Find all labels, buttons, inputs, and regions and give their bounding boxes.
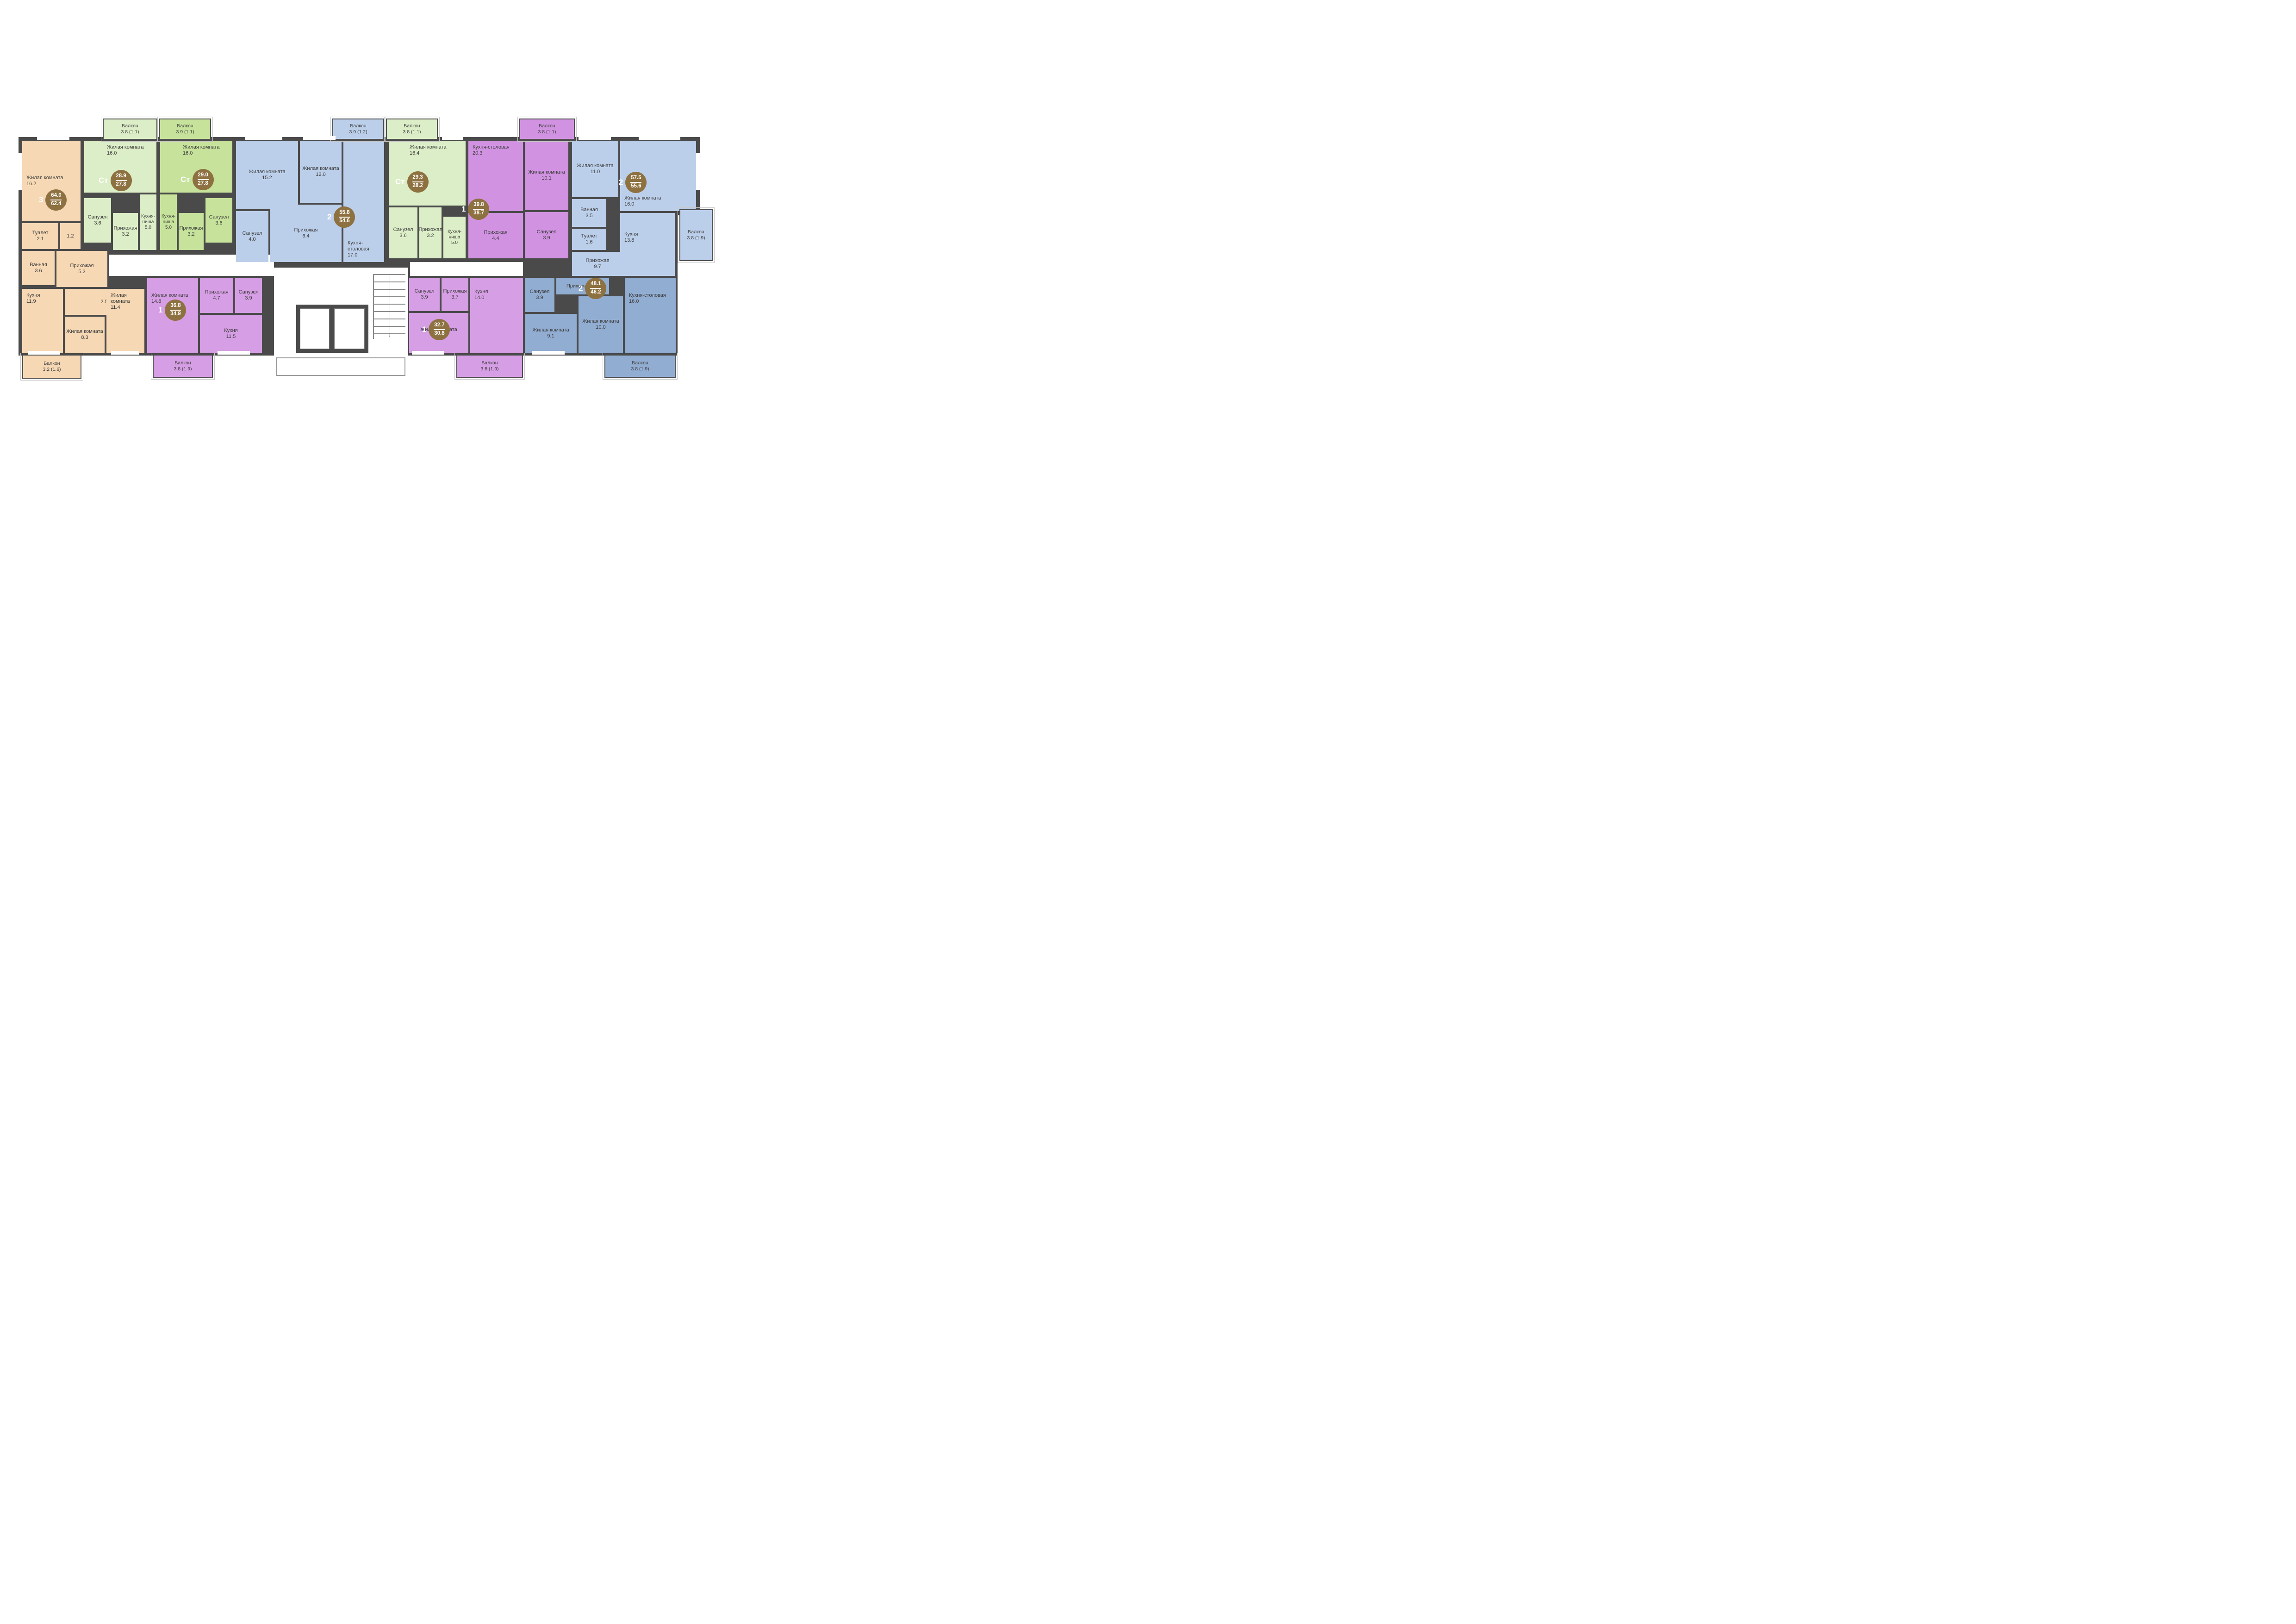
apartment-rooms-count: 1 [422,325,426,334]
room-san[interactable]: Санузел4.0 [236,211,268,262]
room-toilet[interactable]: Туалет1.6 [572,229,606,250]
room-area: 3.9 [530,295,550,301]
room-kitchen-dining[interactable]: Кухня-столовая16.0 [625,278,676,353]
room-area: 4.7 [205,295,229,301]
window [579,136,611,140]
room-hallway[interactable]: Прихожая3.2 [419,207,442,258]
area-living: 28.2 [412,183,423,189]
room-kitchen[interactable]: Кухня14.0 [470,278,523,353]
room-area: 5.0 [443,240,466,246]
window [37,136,69,140]
balcony-label: Балкон [121,123,139,129]
area-total: 29.0 [198,172,208,179]
room-area: 3.2 [419,233,442,239]
room-area: 3.6 [88,220,108,226]
balcony-area: 3.8 (1.1) [538,129,556,135]
balcony-label: Балкон [631,360,649,366]
room-label: Санузел [209,214,229,220]
area-total: 28.9 [116,173,126,180]
balcony-label: Балкон [403,123,421,129]
apartment-area-badge: 29.328.2 [407,171,429,193]
balcony[interactable]: Балкон3.9 (1.1) [159,119,211,140]
room-living[interactable]: Жилая комната10.0 [579,296,623,353]
room-san[interactable]: Санузел3.6 [389,207,417,258]
room-label: Жилая комната [111,293,144,305]
room-label: Туалет [581,233,597,239]
room-label: Жилая комната [249,169,285,175]
room-kitchen-dining[interactable]: Кухня-столовая17.0 [343,141,384,262]
entrance-porch [276,357,405,376]
window [19,153,22,190]
room-label: Прихожая [70,263,94,269]
balcony[interactable]: Балкон3.2 (1.6) [22,355,81,379]
room-label: Кухня-столовая [473,144,510,150]
window [218,351,250,355]
window [442,136,463,140]
room-area: 3.6 [209,220,229,226]
room-label: Санузел [393,227,413,233]
room-label: Санузел [88,214,108,220]
area-total: 64.0 [51,193,61,199]
stair-core: ↓ [274,268,408,356]
fraction-line [473,209,484,210]
apartment-badge[interactable]: 2 57.555.6 [619,172,647,193]
room-area: 3.9 [537,235,557,241]
window [28,351,60,355]
room-toilet[interactable]: Туалет2.1 [22,223,58,249]
area-total: 57.5 [631,175,641,181]
balcony-area: 3.8 (1.1) [121,129,139,135]
room-area: 13.8 [624,237,638,244]
room-area: 3.2 [114,231,137,237]
elevator [300,308,330,349]
apartment-rooms-count: 2 [327,212,331,222]
apartment-badge[interactable]: 2 55.854.6 [327,206,355,228]
room-area: 4.0 [243,237,262,243]
room-area: 14.0 [474,295,488,301]
area-living: 46.2 [591,289,601,296]
apartment-rooms-count: 1 [158,306,162,315]
room-san[interactable]: Санузел3.9 [525,212,568,258]
corridor [410,262,523,276]
room-area: 16.0 [624,201,661,207]
apartment-rooms-count: Ст [180,175,190,184]
area-total: 48.1 [591,281,601,287]
room-area: 5.0 [140,225,156,231]
room-label: Кухня [26,293,40,299]
room-label: Жилая комната [66,329,103,335]
room-living[interactable]: Жилая комната11.4 [106,289,144,353]
apartment-area-badge: 29.027.8 [193,169,214,190]
elevator-bank [296,305,368,353]
window [696,153,700,190]
balcony-label: Балкон [349,123,367,129]
balcony[interactable]: Балкон3.8 (1.1) [103,119,157,140]
room-label: Кухня [224,328,237,334]
room-living[interactable]: Жилая комната8.3 [65,317,105,353]
fraction-line [630,182,641,183]
room-label: Кухня-ниша [443,229,466,240]
room-living[interactable]: Жилая комната9.1 [525,314,577,353]
room-label: Кухня-столовая [348,240,384,252]
room-label: Ванная [580,207,598,213]
room-hallway[interactable]: Прихожая3.7 [442,278,468,311]
room-label: Прихожая [484,230,508,236]
window [412,351,444,355]
room-area: 4.4 [484,236,508,242]
apartment-rooms-count: Ст [395,177,405,187]
apartment-area-badge: 57.555.6 [625,172,647,193]
apartment-area-badge: 48.146.2 [585,278,606,299]
area-living: 38.7 [473,210,484,217]
room-label: Прихожая [114,225,137,231]
room-hallway[interactable]: Прихожая3.2 [179,213,204,250]
balcony[interactable]: Балкон3.8 (1.1) [519,119,575,140]
window [111,351,139,355]
room-bath[interactable]: Ванная3.5 [572,199,606,227]
room-label: Жилая комната [528,169,565,175]
room-kitchen-niche[interactable]: Кухня-ниша5.0 [443,217,466,258]
room-label: Жилая комната [107,144,143,150]
balcony-label: Балкон [538,123,556,129]
room-living[interactable]: Жилая комната11.0 [572,141,618,197]
apartment-rooms-count: 2 [619,178,623,187]
room-san[interactable]: Санузел3.9 [409,278,440,311]
apartment-area-badge: 64.062.4 [45,189,67,211]
fraction-line [198,179,209,180]
room-label: Кухня-столовая [629,293,666,299]
room-area: 20.3 [473,150,510,156]
room-san[interactable]: Санузел3.6 [205,198,232,243]
room-area: 5.2 [70,269,94,275]
room-label: Кухня-ниша [160,214,177,225]
area-living: 27.8 [198,181,208,187]
area-total: 32.7 [434,322,444,329]
room-area: 11.5 [224,334,237,340]
balcony-area: 3.8 (1.9) [174,366,192,372]
apartment-area-badge: 39.838.7 [468,199,489,220]
balcony-area: 3.9 (1.1) [176,129,194,135]
room-kitchen-niche[interactable]: Кухня-ниша5.0 [140,194,156,250]
room-kitchen[interactable]: Кухня11.5 [200,315,262,353]
room-san[interactable]: Санузел3.6 [84,198,111,243]
stair-arrow-icon: ↓ [388,331,392,338]
room-label: Прихожая [205,289,229,295]
balcony[interactable]: Балкон3.9 (1.2) [332,119,384,140]
room-area: 5.0 [160,225,177,231]
balcony-area: 3.8 (1.1) [403,129,421,135]
fraction-line [590,288,601,289]
area-living: 62.4 [51,201,61,207]
room-area: 10.1 [528,175,565,181]
room-label: Прихожая [419,227,442,233]
window [639,136,680,140]
room-label: Жилая комната [577,163,613,169]
room-label: Жилая комната [582,319,619,325]
area-living: 34.9 [170,311,180,318]
room-area: 16.2 [26,181,63,187]
area-total: 29.3 [412,175,423,181]
room-label: Санузел [239,289,259,295]
room-area: 8.3 [66,335,103,341]
fraction-line [50,200,62,200]
apartment-area-badge: 28.927.8 [111,170,132,191]
room-hallway[interactable]: Прихожая4.7 [200,278,233,313]
room-label: Санузел [243,231,262,237]
apartment-rooms-count: 1 [461,205,466,214]
room-label: Кухня [474,289,488,295]
balcony[interactable]: Балкон3.8 (1.9) [456,355,523,378]
room-label: Туалет [32,230,49,236]
apartment-badge[interactable]: Ст 29.027.8 [180,169,214,190]
room-label: Санузел [415,288,435,294]
fraction-line [339,217,350,218]
balcony-area: 3.8 (1.9) [480,366,498,372]
balcony-label: Балкон [176,123,194,129]
room-label: Жилая комната [410,144,446,150]
room-area: 3.6 [393,233,413,239]
room-label: Кухня-ниша [140,214,156,225]
fraction-line [434,329,445,330]
staircase: ↓ [373,274,405,339]
elevator [334,308,365,349]
area-total: 55.8 [339,210,349,216]
room-area: 12.0 [302,172,339,178]
room-living[interactable]: Жилая комната15.2 [236,141,298,209]
room-living[interactable]: Жилая комната10.1 [525,141,568,210]
room-hallway[interactable]: Прихожая5.2 [56,251,107,287]
room-label: Санузел [530,289,550,295]
window [303,136,336,140]
room-area: 3.9 [415,294,435,300]
room-area: 16.0 [629,299,666,305]
room-hallway[interactable]: Прихожая9.7 [572,252,623,276]
fraction-line [116,180,127,181]
apartment-rooms-count: 2 [579,284,583,293]
apartment-badge[interactable]: Ст 28.927.8 [99,170,132,191]
room-area: 16.0 [107,150,143,156]
room-area: 3.6 [30,268,47,274]
area-living: 54.6 [339,218,349,225]
balcony-area: 3.8 (1.9) [687,235,705,241]
room-label: Ванная [30,262,47,268]
area-living: 30.8 [434,331,444,337]
room-area: 6.4 [294,233,318,239]
room-label: Прихожая [586,258,610,264]
room-area: 15.2 [249,175,285,181]
room-san[interactable]: Санузел3.9 [235,278,262,313]
apartment-badge[interactable]: 1 36.834.9 [158,300,186,321]
room-label: Жилая комната [532,327,569,333]
room-label: Жилая комната [26,175,63,181]
room-living[interactable]: Жилая комната12.0 [300,141,342,203]
apartment-badge[interactable]: 1 39.838.7 [461,199,489,220]
balcony-label: Балкон [43,361,61,367]
room-area: 2.1 [32,236,49,242]
balcony-label: Балкон [687,229,705,235]
apartment-badge[interactable]: 3 64.062.4 [39,189,67,211]
area-total: 39.8 [473,202,484,208]
balcony[interactable]: Балкон3.8 (1.1) [386,119,438,140]
room-kitchen-niche[interactable]: Кухня-ниша5.0 [160,194,177,250]
apartment-area-badge: 36.834.9 [165,300,186,321]
balcony-area: 3.8 (1.9) [631,366,649,372]
room-area: 11.4 [111,305,144,311]
room-label: Санузел [537,229,557,235]
room-bath[interactable]: Ванная3.6 [22,251,55,285]
room-label: Прихожая [443,288,467,294]
room-area: 10.0 [582,325,619,331]
room-area: 17.0 [348,252,384,258]
room-label: Жилая комната [302,166,339,172]
balcony[interactable]: Балкон3.8 (1.9) [153,355,213,378]
balcony-label: Балкон [174,360,192,366]
room-area: 1.2 [67,233,74,239]
apartment-badge[interactable]: 2 48.146.2 [579,278,606,299]
room-area: 9.7 [586,264,610,270]
balcony-area: 3.2 (1.6) [43,367,61,373]
room-area: 3.2 [180,231,203,237]
room-label: Жилая комната [624,195,661,201]
room-label: Прихожая [294,227,318,233]
room-label: Кухня [624,231,638,237]
window [532,351,565,355]
apartment-rooms-count: Ст [99,176,108,185]
room-area: 16.0 [183,150,219,156]
apartment-rooms-count: 3 [39,195,43,205]
room-label: Прихожая [180,225,203,231]
room-area: 1.6 [581,239,597,245]
area-living: 55.6 [631,183,641,190]
area-living: 27.8 [116,181,126,188]
room-area: 16.4 [410,150,446,156]
room-area: 11.9 [26,299,40,305]
balcony-area: 3.9 (1.2) [349,129,367,135]
apartment-area-badge: 55.854.6 [334,206,355,228]
apartment-badge[interactable]: Ст 29.328.2 [395,171,429,193]
room-area: 3.9 [239,295,259,301]
room-kitchen[interactable]: Кухня13.8 [620,213,675,276]
room-area: 3.5 [580,213,598,219]
room-area: 3.7 [443,294,467,300]
room-kitchen[interactable]: Кухня11.9 [22,289,63,353]
floor-plan: ↓ Жилая комната16.2 Туалет2.1 1.2 Ванная… [0,0,715,506]
stair-divider [390,274,390,339]
room-area: 9.1 [532,333,569,339]
apartment-badge[interactable]: 1 32.730.8 [422,319,450,340]
room-hallway[interactable]: Прихожая3.2 [113,213,138,250]
window [245,136,282,140]
room-label: Жилая комната [183,144,219,150]
apartment-area-badge: 32.730.8 [429,319,450,340]
room-san[interactable]: Санузел3.9 [525,278,554,312]
balcony[interactable]: Балкон3.8 (1.9) [679,209,713,261]
room-corridor[interactable]: 1.2 [60,223,81,249]
fraction-line [412,181,423,182]
fraction-line [170,310,181,311]
room-area: 11.0 [577,169,613,175]
room-label: Жилая комната [151,293,188,299]
balcony[interactable]: Балкон3.8 (1.9) [604,355,676,378]
area-total: 36.8 [170,303,180,309]
balcony-label: Балкон [480,360,498,366]
